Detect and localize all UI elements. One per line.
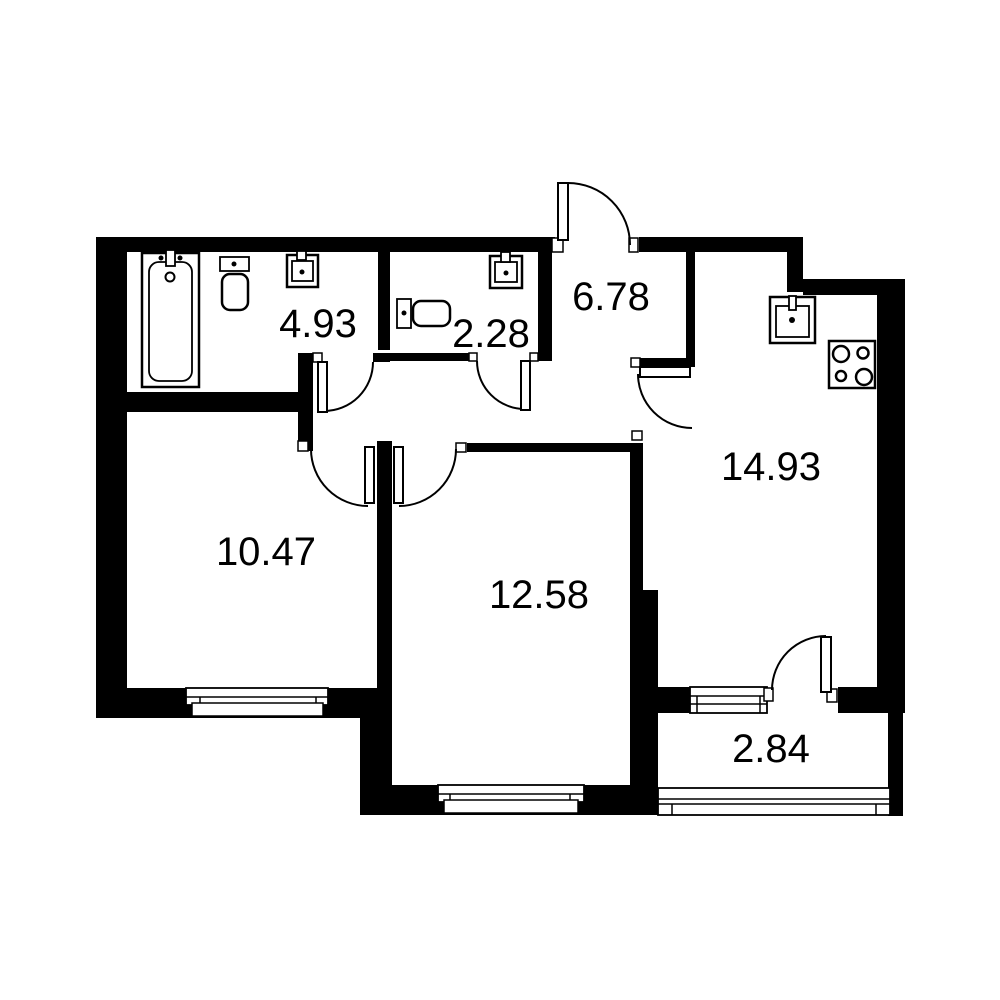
kitchen-door — [631, 358, 692, 440]
room-label-bathroom: 4.93 — [279, 302, 357, 346]
wall-bathdoor-right — [373, 353, 390, 362]
room-label-kitchen: 14.93 — [721, 445, 821, 489]
wall-corridor-south — [467, 443, 633, 452]
room-label-hallway: 6.78 — [572, 275, 650, 319]
balcony-door — [764, 636, 837, 702]
room-label-wc: 2.28 — [452, 312, 530, 356]
wall-bathroom-bottom — [96, 392, 298, 412]
entrance-door — [552, 183, 638, 252]
bathtub-icon — [142, 250, 199, 387]
bathroom-door — [313, 353, 373, 412]
balcony-glazing — [658, 788, 890, 815]
wall-wc-east — [538, 252, 552, 361]
wall-top-right — [639, 237, 803, 252]
sink-icon — [287, 251, 318, 287]
balcony-window — [690, 687, 767, 713]
room-label-bedroom: 10.47 — [216, 530, 316, 574]
sink-icon-2 — [490, 252, 522, 288]
floor-plan-canvas: 4.93 2.28 6.78 14.93 10.47 12.58 2.84 — [0, 0, 1000, 1000]
floor-plan: 4.93 2.28 6.78 14.93 10.47 12.58 2.84 — [0, 0, 1000, 1000]
wc-door — [469, 353, 538, 410]
wall-left — [96, 237, 127, 718]
bedroom-window — [186, 688, 328, 716]
living-room-window — [438, 785, 584, 813]
stove-icon — [829, 341, 875, 388]
living-room-door — [394, 443, 466, 506]
wall-balcony-top-left — [658, 687, 690, 713]
wall-east-thin — [630, 443, 643, 603]
wall-stub-connector — [298, 353, 313, 451]
toilet-icon-2 — [397, 299, 450, 328]
wall-balcony-top-right — [838, 687, 890, 713]
toilet-icon — [220, 257, 249, 310]
wall-step-vertical — [787, 252, 803, 292]
room-label-balcony: 2.84 — [732, 727, 810, 771]
wall-right — [877, 279, 905, 713]
wall-top-left — [96, 237, 555, 252]
wall-bath-wc-divider — [378, 252, 390, 350]
wall-east-thick — [630, 590, 658, 815]
kitchen-sink-icon — [770, 296, 815, 343]
room-label-living-room: 12.58 — [489, 573, 589, 617]
wall-kitchendoor-stub — [640, 358, 687, 367]
wall-hall-kitchen — [686, 252, 695, 367]
